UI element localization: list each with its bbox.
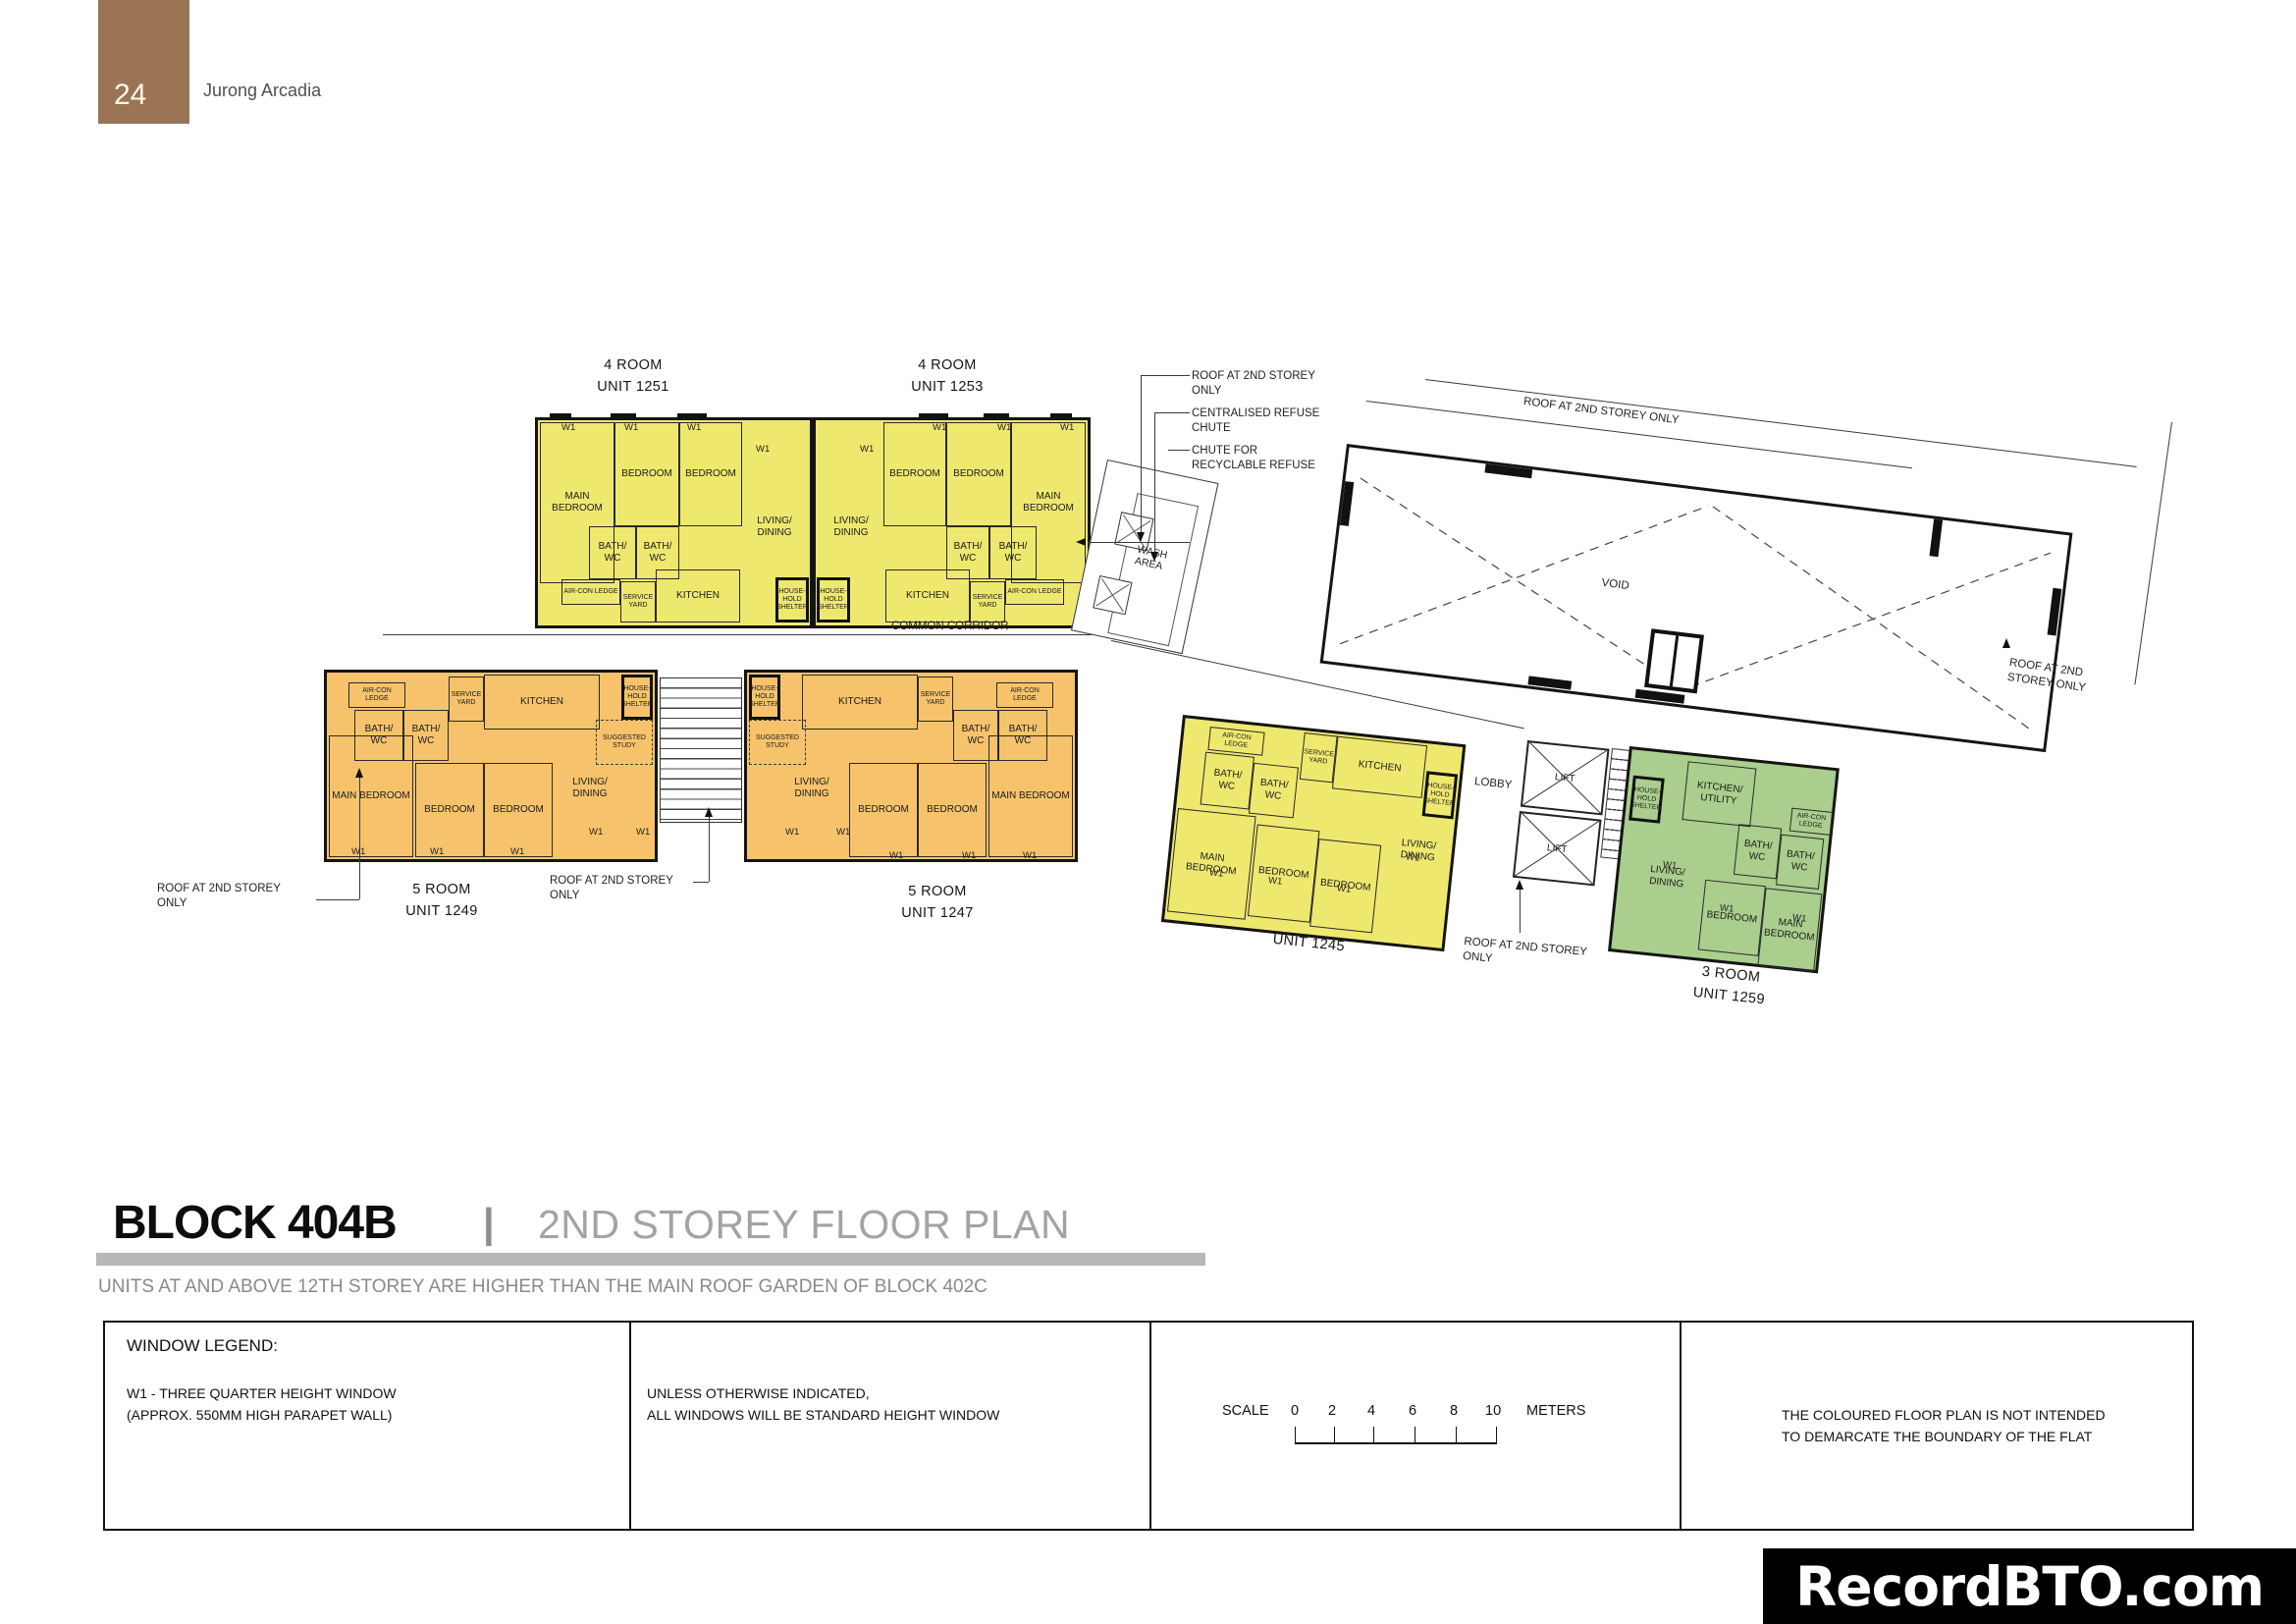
- room-label: MAIN BEDROOM: [1757, 888, 1822, 972]
- room-label: HOUSE- HOLD SHELTER: [749, 675, 780, 720]
- leader-line: [1425, 379, 2137, 467]
- room-label: AIR-CON LEDGE: [561, 579, 620, 605]
- window-label: W1: [756, 444, 770, 455]
- annotation-line: CHUTE: [1192, 421, 1349, 436]
- unit-1249: MAIN BEDROOM BEDROOM BEDROOM LIVING/ DIN…: [324, 670, 658, 862]
- room-label: LIVING/ DINING: [1384, 819, 1453, 884]
- room-label: MAIN BEDROOM: [1167, 808, 1256, 920]
- room-label: BATH/ WC: [354, 710, 403, 761]
- room-label: KITCHEN: [484, 675, 600, 730]
- room-label: KITCHEN/ UTILITY: [1682, 761, 1756, 827]
- room-label: SERVICE YARD: [1300, 732, 1338, 783]
- room-label: BATH/ WC: [589, 526, 636, 579]
- scale-tick: 2: [1328, 1403, 1336, 1419]
- scale-ruler-tick: [1496, 1427, 1497, 1442]
- scale-tick: 8: [1450, 1403, 1458, 1419]
- window-label: W1: [687, 422, 701, 433]
- page-number: 24: [114, 79, 146, 112]
- watermark-text: RecordBTO.com: [1795, 1555, 2264, 1618]
- room-label: HOUSE- HOLD SHELTER: [621, 675, 653, 720]
- unit-1251: MAIN BEDROOM BEDROOM BEDROOM LIVING/ DIN…: [535, 417, 813, 628]
- unit-type: 4 ROOM: [888, 355, 1006, 377]
- common-corridor-label: COMMON CORRIDOR: [891, 621, 1008, 632]
- scale-tick: 6: [1409, 1403, 1416, 1419]
- table-divider: [1680, 1323, 1682, 1529]
- window-legend-text: W1 - THREE QUARTER HEIGHT WINDOW (APPROX…: [127, 1383, 397, 1426]
- lift-box: LIFT: [1513, 811, 1602, 886]
- scale-ruler: [1295, 1442, 1497, 1444]
- room-label: BATH/ WC: [403, 710, 449, 761]
- window-label: W1: [1405, 851, 1419, 863]
- window-label: W1: [1208, 867, 1223, 879]
- window-label: W1: [1267, 875, 1282, 887]
- unit-number: UNIT 1247: [879, 903, 996, 925]
- window-label: W1: [889, 850, 903, 861]
- room-label: HOUSE- HOLD SHELTER: [817, 577, 850, 623]
- title-underline-bar: [96, 1253, 1205, 1266]
- window-label: W1: [510, 846, 524, 857]
- leader-line: [359, 778, 360, 899]
- window-label: W1: [860, 444, 874, 455]
- leader-arrow: [1137, 532, 1145, 542]
- staircase: [660, 677, 742, 823]
- room-label: BEDROOM: [614, 422, 679, 526]
- annotation-line: CHUTE FOR: [1192, 444, 1349, 459]
- watermark-box: RecordBTO.com: [1763, 1548, 2296, 1624]
- title-separator: |: [483, 1200, 495, 1247]
- window-label: W1: [636, 827, 650, 838]
- void-diagonals: [1323, 447, 2068, 747]
- leader-line: [2134, 422, 2172, 685]
- unit-type: 4 ROOM: [574, 355, 692, 377]
- room-label: BATH/ WC: [1734, 824, 1782, 879]
- window-label: W1: [1023, 850, 1037, 861]
- window-label: W1: [1719, 902, 1734, 914]
- legend-line: ALL WINDOWS WILL BE STANDARD HEIGHT WIND…: [647, 1405, 999, 1427]
- room-label: SERVICE YARD: [449, 677, 484, 722]
- leader-line: [1088, 542, 1190, 543]
- unit-1245: MAIN BEDROOM BEDROOM BEDROOM LIVING/ DIN…: [1161, 715, 1467, 951]
- window-label: W1: [624, 422, 638, 433]
- annotation-line: RECYCLABLE REFUSE: [1192, 459, 1349, 473]
- room-label: BEDROOM: [918, 763, 987, 857]
- unit-number: UNIT 1249: [383, 901, 501, 923]
- leader-line: [316, 899, 359, 900]
- coloured-plan-disclaimer: THE COLOURED FLOOR PLAN IS NOT INTENDED …: [1782, 1405, 2106, 1447]
- window-label: W1: [1662, 859, 1677, 871]
- floor-plan-page: 24 Jurong Arcadia 4 ROOM UNIT 1251 4 ROO…: [0, 0, 2296, 1624]
- unit-caption: 4 ROOM UNIT 1253: [888, 355, 1006, 399]
- legend-table: WINDOW LEGEND: W1 - THREE QUARTER HEIGHT…: [103, 1321, 2194, 1531]
- room-label: SUGGESTED STUDY: [596, 720, 653, 765]
- lift-box: LIFT: [1521, 740, 1610, 815]
- unit-caption: 5 ROOM UNIT 1249: [383, 880, 501, 923]
- void-wing: VOID: [1320, 444, 2073, 752]
- room-label: LIVING/ DINING: [740, 497, 809, 558]
- room-label: BEDROOM: [1248, 825, 1319, 923]
- leader-arrow: [355, 768, 363, 778]
- scale-ruler-tick: [1456, 1427, 1457, 1442]
- room-label: SERVICE YARD: [620, 581, 656, 623]
- page-number-tab: 24: [98, 0, 189, 124]
- window-note-text: UNLESS OTHERWISE INDICATED, ALL WINDOWS …: [647, 1383, 999, 1426]
- leader-line: [1141, 375, 1142, 532]
- legend-line: THE COLOURED FLOOR PLAN IS NOT INTENDED: [1782, 1405, 2106, 1427]
- annotation-recyclable-refuse-chute: CHUTE FOR RECYCLABLE REFUSE: [1192, 444, 1349, 472]
- window-label: W1: [962, 850, 976, 861]
- scale-label: SCALE: [1222, 1403, 1269, 1419]
- legend-line: (APPROX. 550MM HIGH PARAPET WALL): [127, 1405, 397, 1427]
- corridor-line: [383, 634, 1113, 635]
- window-label: W1: [933, 422, 946, 433]
- plan-title: 2ND STOREY FLOOR PLAN: [538, 1202, 1070, 1248]
- annotation-line: ONLY: [1192, 384, 1349, 399]
- storey-note: UNITS AT AND ABOVE 12TH STOREY ARE HIGHE…: [98, 1276, 988, 1298]
- annotation-line: CENTRALISED REFUSE: [1192, 406, 1349, 421]
- window-label: W1: [1060, 422, 1074, 433]
- room-label: AIR-CON LEDGE: [1789, 808, 1833, 836]
- window-label: W1: [997, 422, 1011, 433]
- leader-line: [1154, 412, 1155, 552]
- room-label: LIVING/ DINING: [817, 497, 885, 558]
- scale-tick: 10: [1485, 1403, 1501, 1419]
- leader-arrow: [705, 807, 713, 817]
- room-label: AIR-CON LEDGE: [1207, 727, 1264, 756]
- room-label: LIVING/ DINING: [555, 767, 625, 810]
- window-label: W1: [785, 827, 799, 838]
- room-label: BEDROOM: [883, 422, 946, 526]
- recyclable-chute-box: [1093, 575, 1132, 615]
- project-name: Jurong Arcadia: [203, 81, 321, 101]
- leader-arrow: [1150, 552, 1158, 562]
- leader-arrow: [1516, 880, 1523, 890]
- block-title: BLOCK 404B: [113, 1196, 397, 1250]
- room-label: BEDROOM: [484, 763, 553, 857]
- scale-ruler-tick: [1295, 1427, 1296, 1442]
- annotation-centralised-refuse-chute: CENTRALISED REFUSE CHUTE: [1192, 406, 1349, 435]
- annotation-line: ROOF AT 2ND STOREY: [157, 882, 314, 896]
- annotation-roof-2nd-storey: ROOF AT 2ND STOREY ONLY: [1462, 935, 1630, 978]
- unit-caption: 5 ROOM UNIT 1247: [879, 882, 996, 925]
- leader-line: [693, 882, 709, 883]
- room-label: BATH/ WC: [1201, 752, 1255, 810]
- window-label: W1: [589, 827, 603, 838]
- room-label: BATH/ WC: [1776, 835, 1824, 890]
- table-divider: [629, 1323, 631, 1529]
- annotation-roof-2nd-storey: ROOF AT 2ND STOREY ONLY: [1192, 369, 1349, 398]
- room-label: SUGGESTED STUDY: [749, 720, 806, 765]
- room-label: KITCHEN: [1332, 736, 1427, 798]
- room-label: SERVICE YARD: [918, 677, 953, 722]
- leader-line: [1168, 450, 1190, 451]
- scale-ruler-tick: [1334, 1427, 1335, 1442]
- room-label: BATH/ WC: [953, 710, 998, 761]
- lift-label: LIFT: [1554, 772, 1575, 785]
- annotation-line: ROOF AT 2ND STOREY: [550, 874, 707, 889]
- annotation-line: ROOF AT 2ND STOREY: [1192, 369, 1349, 384]
- room-label: BEDROOM: [415, 763, 484, 857]
- refuse-chute-structure: WASH AREA: [1071, 460, 1218, 654]
- lift-label: LIFT: [1546, 842, 1568, 855]
- window-label: W1: [836, 827, 850, 838]
- leader-line: [1154, 412, 1190, 413]
- unit-1253: MAIN BEDROOM BEDROOM BEDROOM LIVING/ DIN…: [813, 417, 1091, 628]
- room-label: KITCHEN: [656, 569, 740, 623]
- unit-number: UNIT 1251: [574, 377, 692, 399]
- window-label: W1: [1791, 912, 1806, 924]
- table-divider: [1149, 1323, 1151, 1529]
- room-label: BATH/ WC: [1249, 763, 1299, 819]
- leader-line: [1520, 890, 1521, 933]
- annotation-roof-2nd-storey: ROOF AT 2ND STOREY ONLY: [157, 882, 314, 910]
- window-legend-title: WINDOW LEGEND:: [127, 1336, 278, 1356]
- annotation-line: ONLY: [550, 889, 707, 903]
- leader-line: [709, 817, 710, 882]
- unit-1259: LIVING/ DINING BEDROOM MAIN BEDROOM KITC…: [1608, 746, 1840, 973]
- room-label: HOUSE- HOLD SHELTER: [1629, 776, 1665, 824]
- window-label: W1: [561, 422, 575, 433]
- room-label: SERVICE YARD: [970, 581, 1005, 623]
- unit-type: 5 ROOM: [383, 880, 501, 901]
- unit-number: UNIT 1253: [888, 377, 1006, 399]
- room-label: HOUSE- HOLD SHELTER: [1422, 771, 1459, 819]
- room-label: BEDROOM: [1698, 880, 1766, 956]
- leader-arrow: [1076, 538, 1086, 546]
- legend-line: W1 - THREE QUARTER HEIGHT WINDOW: [127, 1383, 397, 1405]
- room-label: BEDROOM: [849, 763, 918, 857]
- lobby-label: LOBBY: [1473, 776, 1512, 791]
- room-label: KITCHEN: [802, 675, 918, 730]
- room-label: BEDROOM: [679, 422, 742, 526]
- window-label: W1: [1336, 883, 1351, 894]
- room-label: LIVING/ DINING: [776, 767, 847, 810]
- leader-line: [1141, 375, 1190, 376]
- annotation-roof-2nd-storey: ROOF AT 2ND STOREY ONLY: [550, 874, 707, 902]
- scale-unit: METERS: [1526, 1403, 1585, 1419]
- leader-arrow: [2002, 638, 2010, 648]
- room-label: BATH/ WC: [998, 710, 1047, 761]
- room-label: KITCHEN: [885, 569, 970, 623]
- legend-line: UNLESS OTHERWISE INDICATED,: [647, 1383, 999, 1405]
- legend-line: TO DEMARCATE THE BOUNDARY OF THE FLAT: [1782, 1427, 2106, 1448]
- scale-ruler-tick: [1415, 1427, 1415, 1442]
- unit-type: 5 ROOM: [879, 882, 996, 903]
- unit-caption: 4 ROOM UNIT 1251: [574, 355, 692, 399]
- room-label: LIVING/ DINING: [1631, 844, 1702, 910]
- room-label: AIR-CON LEDGE: [348, 682, 405, 708]
- scale-ruler-tick: [1373, 1427, 1374, 1442]
- scale-tick: 0: [1291, 1403, 1299, 1419]
- room-label: AIR-CON LEDGE: [996, 682, 1053, 708]
- room-label: BATH/ WC: [989, 526, 1037, 579]
- room-label: AIR-CON LEDGE: [1005, 579, 1064, 605]
- room-label: HOUSE- HOLD SHELTER: [775, 577, 809, 623]
- window-label: W1: [430, 846, 444, 857]
- annotation-line: ONLY: [157, 896, 314, 911]
- scale-tick: 4: [1367, 1403, 1375, 1419]
- room-label: BEDROOM: [946, 422, 1011, 526]
